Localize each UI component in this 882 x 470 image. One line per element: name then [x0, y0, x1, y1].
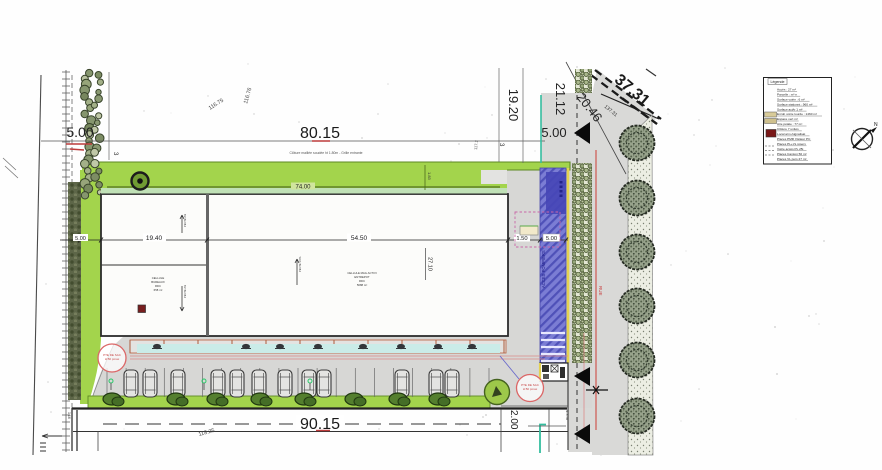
- svg-text:Surface act/tr 1 m²: Surface act/tr 1 m²: [777, 107, 802, 111]
- svg-text:5.00: 5.00: [75, 236, 86, 242]
- svg-text:Clôture maillée soudée ht 1.80: Clôture maillée soudée ht 1.80m - Grille…: [289, 151, 362, 155]
- svg-text:Places PL+VL réserv: Places PL+VL réserv: [777, 142, 806, 146]
- svg-text:2.00: 2.00: [508, 410, 519, 430]
- svg-text:80.15: 80.15: [300, 125, 340, 142]
- svg-text:Parcelle : m² e: Parcelle : m² e: [777, 93, 797, 97]
- svg-text:RUE: RUE: [598, 286, 603, 296]
- svg-text:5.00: 5.00: [546, 236, 557, 242]
- svg-text:H:50 pmax: H:50 pmax: [523, 387, 538, 391]
- svg-text:117.2: 117.2: [473, 139, 479, 150]
- svg-text:Aire pétale : 77 m²: Aire pétale : 77 m²: [777, 122, 802, 126]
- svg-text:PENTE 1.5%: PENTE 1.5%: [298, 256, 302, 272]
- svg-text:Places VL pers 27 m²: Places VL pers 27 m²: [777, 157, 806, 161]
- svg-text:5.00: 5.00: [66, 124, 93, 140]
- svg-text:Places PMR Visiteur PC: Places PMR Visiteur PC: [777, 137, 811, 141]
- svg-text:54.50: 54.50: [351, 235, 368, 242]
- svg-text:19.40: 19.40: [146, 235, 163, 242]
- svg-text:Légende: Légende: [771, 80, 785, 84]
- svg-text:1.16: 1.16: [67, 412, 71, 419]
- svg-text:ACCES POMPIERS: ACCES POMPIERS: [541, 250, 546, 288]
- svg-text:Accès : 27 m²: Accès : 27 m²: [777, 88, 796, 92]
- svg-text:Places Camion 50 m²: Places Camion 50 m²: [777, 152, 807, 156]
- svg-text:27.10: 27.10: [427, 257, 433, 271]
- svg-text:21.12: 21.12: [553, 83, 568, 116]
- svg-text:Espace vert m²: Espace vert m²: [777, 117, 798, 121]
- svg-text:1.83: 1.83: [427, 172, 432, 181]
- svg-text:H:50 pmax: H:50 pmax: [105, 357, 120, 361]
- svg-text:658 m²: 658 m²: [154, 288, 163, 292]
- svg-text:5.00: 5.00: [541, 125, 566, 140]
- svg-text:PENTE 2%: PENTE 2%: [183, 284, 187, 298]
- svg-text:Voirie accès PL 25t: Voirie accès PL 25t: [777, 147, 804, 151]
- svg-text:5688 m²: 5688 m²: [357, 283, 367, 287]
- svg-text:Clôture 7 unités: Clôture 7 unités: [777, 127, 799, 131]
- svg-text:1.50: 1.50: [516, 236, 527, 242]
- svg-text:N: N: [874, 122, 878, 128]
- svg-text:Enrob voirie lourde : 1460 m²: Enrob voirie lourde : 1460 m²: [777, 112, 817, 116]
- svg-text:Local arm./signalisat: Local arm./signalisat: [777, 132, 805, 136]
- svg-text:19.20: 19.20: [506, 89, 521, 122]
- svg-text:Surface voirie : 6 m²: Surface voirie : 6 m²: [777, 97, 805, 101]
- svg-text:PENTE 2%: PENTE 2%: [183, 213, 187, 227]
- svg-text:74.00: 74.00: [295, 185, 311, 191]
- svg-text:Surface stationnt : 960 m²: Surface stationnt : 960 m²: [777, 102, 812, 106]
